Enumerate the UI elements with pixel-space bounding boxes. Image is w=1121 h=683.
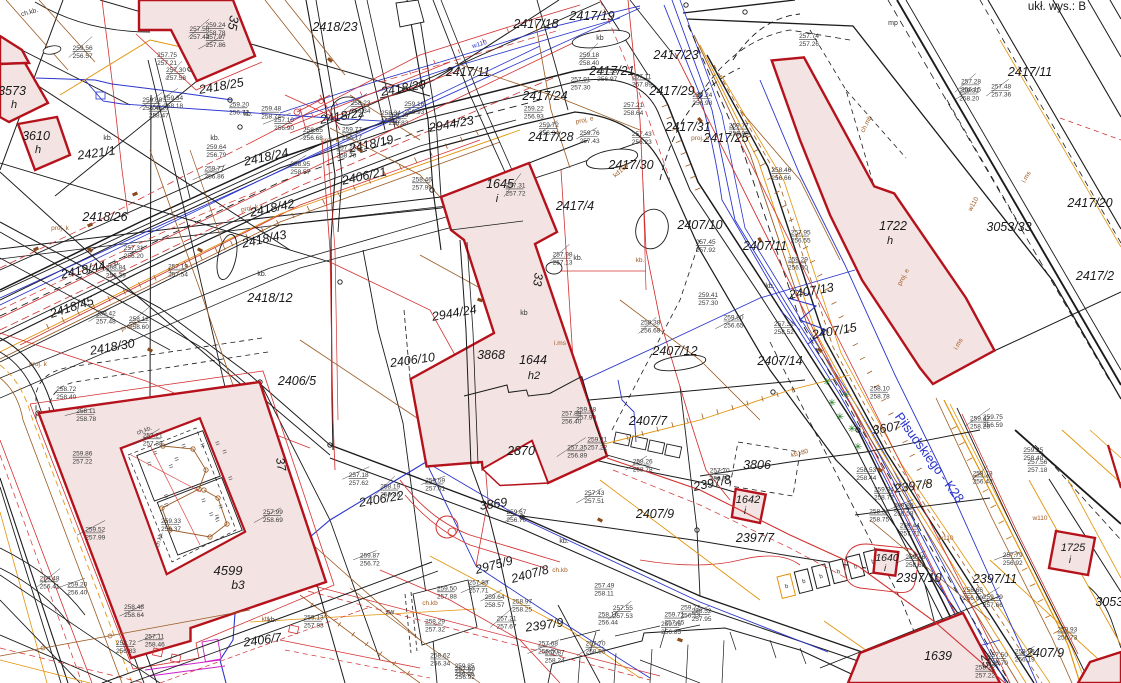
svg-text:258.72: 258.72: [116, 640, 136, 647]
svg-text:✳: ✳: [842, 390, 850, 401]
svg-text:4599: 4599: [214, 563, 243, 578]
svg-text:2417/29: 2417/29: [648, 84, 694, 98]
svg-text:258.11: 258.11: [594, 591, 614, 598]
svg-text:2407/12: 2407/12: [651, 344, 697, 358]
svg-text:257.95: 257.95: [791, 230, 811, 237]
svg-text:257.99: 257.99: [263, 509, 283, 516]
svg-text:258.26: 258.26: [633, 458, 653, 465]
svg-text:✳: ✳: [836, 412, 844, 423]
svg-text:259.59: 259.59: [425, 477, 445, 484]
svg-text:256.40: 256.40: [67, 589, 87, 596]
svg-text:257.72: 257.72: [506, 190, 526, 197]
svg-text:259.84: 259.84: [874, 487, 894, 494]
svg-text:2417/23: 2417/23: [652, 48, 698, 62]
svg-text:258.20: 258.20: [959, 95, 979, 102]
svg-text:ch.kb: ch.kb: [552, 567, 568, 574]
svg-text:258.57: 258.57: [290, 169, 310, 176]
svg-text:257.28: 257.28: [961, 78, 981, 85]
svg-text:258.80: 258.80: [894, 503, 914, 510]
svg-text:256.86: 256.86: [204, 173, 224, 180]
svg-text:proj. k: proj. k: [29, 361, 47, 368]
svg-text:kb.: kb.: [262, 616, 271, 623]
svg-text:257.92: 257.92: [696, 247, 716, 254]
svg-text:257.43: 257.43: [632, 131, 652, 138]
svg-text:256.92: 256.92: [1003, 560, 1023, 567]
svg-text:258.38: 258.38: [641, 320, 661, 327]
svg-text:256.41: 256.41: [40, 583, 60, 590]
svg-text:2407/7: 2407/7: [628, 414, 668, 428]
svg-text:256.85: 256.85: [661, 629, 681, 636]
svg-text:257.71: 257.71: [900, 531, 920, 538]
svg-text:257.91: 257.91: [571, 76, 591, 83]
svg-text:2418/26: 2418/26: [81, 210, 127, 224]
svg-text:258.66: 258.66: [963, 587, 983, 594]
svg-text:2407/14: 2407/14: [756, 354, 802, 368]
svg-text:256.30: 256.30: [788, 264, 808, 271]
svg-text:257.89: 257.89: [562, 411, 582, 418]
svg-text:258.18: 258.18: [163, 103, 183, 110]
svg-text:258.40: 258.40: [56, 394, 76, 401]
svg-text:256.73: 256.73: [1057, 634, 1077, 641]
svg-text:257.53: 257.53: [597, 68, 617, 75]
svg-text:kb.: kb.: [559, 538, 568, 545]
svg-text:258.44: 258.44: [856, 475, 876, 482]
svg-text:258.22: 258.22: [975, 665, 995, 672]
svg-text:259.20: 259.20: [67, 581, 87, 588]
svg-text:258.11: 258.11: [76, 408, 96, 415]
svg-text:3806: 3806: [743, 458, 771, 472]
svg-text:3053/: 3053/: [1095, 595, 1121, 609]
svg-text:2397/11: 2397/11: [972, 572, 1017, 586]
svg-text:257.31: 257.31: [506, 182, 526, 189]
svg-text:257.99: 257.99: [85, 534, 105, 541]
svg-text:259.79: 259.79: [983, 594, 1003, 601]
svg-text:257.26: 257.26: [799, 41, 819, 48]
svg-text:w110: w110: [1031, 515, 1047, 522]
svg-text:258.26: 258.26: [970, 424, 990, 431]
svg-text:2397/10: 2397/10: [895, 571, 941, 585]
svg-text:256.22: 256.22: [381, 118, 401, 125]
svg-text:257.75: 257.75: [157, 52, 177, 59]
svg-text:2418/23: 2418/23: [311, 20, 357, 34]
svg-text:257.70: 257.70: [710, 468, 730, 475]
svg-text:257.32: 257.32: [425, 627, 445, 634]
svg-text:258.62: 258.62: [430, 652, 450, 659]
svg-text:2870: 2870: [506, 444, 535, 458]
svg-text:2406/5: 2406/5: [277, 374, 316, 388]
svg-text:258.46: 258.46: [771, 167, 791, 174]
svg-text:2407/9: 2407/9: [635, 507, 674, 521]
svg-text:256.83: 256.83: [116, 648, 136, 655]
svg-text:259.77: 259.77: [729, 123, 749, 130]
svg-text:257.99: 257.99: [412, 184, 432, 191]
svg-text:256.13: 256.13: [680, 613, 700, 620]
svg-text:33: 33: [530, 272, 546, 287]
svg-text:257.45: 257.45: [696, 239, 716, 246]
svg-text:256.79: 256.79: [206, 152, 226, 159]
svg-text:259.25: 259.25: [1023, 447, 1043, 454]
svg-text:258.24: 258.24: [545, 657, 565, 664]
svg-text:258.78: 258.78: [206, 30, 226, 37]
svg-text:256.34: 256.34: [351, 108, 371, 115]
svg-text:2417/2: 2417/2: [1075, 269, 1114, 283]
svg-text:256.57: 256.57: [73, 53, 93, 60]
svg-text:258.64: 258.64: [623, 110, 643, 117]
svg-text:257.13: 257.13: [553, 260, 573, 267]
svg-text:257.22: 257.22: [587, 444, 607, 451]
svg-text:256.34: 256.34: [430, 660, 450, 667]
svg-text:258.64: 258.64: [124, 612, 144, 619]
svg-text:2417/19: 2417/19: [568, 9, 614, 23]
svg-text:258.78: 258.78: [633, 466, 653, 473]
svg-text:259.44: 259.44: [900, 523, 920, 530]
svg-text:259.16: 259.16: [404, 101, 424, 108]
svg-text:256.90: 256.90: [274, 125, 294, 132]
svg-text:3573: 3573: [0, 84, 26, 98]
svg-text:257.19: 257.19: [168, 263, 188, 270]
svg-text:257.48: 257.48: [96, 319, 116, 326]
svg-text:257.10: 257.10: [274, 117, 294, 124]
svg-text:258.93: 258.93: [404, 109, 424, 116]
svg-text:259.29: 259.29: [788, 256, 808, 263]
svg-text:mp: mp: [888, 20, 898, 27]
svg-text:257.43: 257.43: [580, 138, 600, 145]
svg-text:257.32: 257.32: [774, 321, 794, 328]
svg-text:258.47: 258.47: [149, 113, 169, 120]
svg-text:2417/24: 2417/24: [521, 89, 567, 103]
svg-text:256.19: 256.19: [1015, 657, 1035, 664]
svg-text:259.18: 259.18: [579, 52, 599, 59]
svg-text:257.11: 257.11: [632, 73, 652, 80]
svg-text:258.72: 258.72: [56, 386, 76, 393]
svg-text:257.83: 257.83: [304, 623, 324, 630]
svg-text:257.67: 257.67: [497, 623, 517, 630]
svg-text:257.49: 257.49: [594, 583, 614, 590]
svg-text:259.47: 259.47: [970, 416, 990, 423]
svg-text:259.13: 259.13: [304, 615, 324, 622]
svg-text:256.50: 256.50: [538, 648, 558, 655]
svg-text:257.18: 257.18: [349, 472, 369, 479]
svg-text:h2: h2: [528, 370, 540, 382]
svg-text:258.46: 258.46: [380, 492, 400, 499]
svg-text:✳: ✳: [848, 424, 856, 435]
svg-text:kb.: kb.: [210, 135, 219, 142]
svg-text:257.22: 257.22: [73, 459, 93, 466]
svg-text:256.98: 256.98: [692, 100, 712, 107]
svg-text:258.70: 258.70: [336, 152, 356, 159]
svg-text:kb: kb: [520, 310, 528, 317]
svg-text:259.76: 259.76: [580, 130, 600, 137]
svg-text:1722: 1722: [879, 219, 907, 233]
svg-text:258.93: 258.93: [586, 649, 606, 656]
svg-text:259.68: 259.68: [142, 97, 162, 104]
svg-text:256.66: 256.66: [771, 175, 791, 182]
svg-text:2407/11: 2407/11: [742, 239, 787, 253]
svg-text:258.69: 258.69: [263, 517, 283, 524]
svg-text:259.56: 259.56: [73, 45, 93, 52]
svg-text:✳: ✳: [828, 398, 836, 409]
svg-text:257.36: 257.36: [991, 92, 1011, 99]
svg-text:zw: zw: [386, 609, 396, 616]
svg-text:257.62: 257.62: [349, 480, 369, 487]
svg-text:1640: 1640: [875, 552, 899, 564]
svg-text:2417/18: 2417/18: [512, 17, 558, 31]
svg-text:256.40: 256.40: [562, 419, 582, 426]
svg-text:258.48: 258.48: [124, 604, 144, 611]
svg-text:2417/11: 2417/11: [445, 65, 490, 79]
svg-text:h: h: [887, 235, 893, 247]
svg-text:258.75: 258.75: [869, 516, 889, 523]
svg-text:258.52: 258.52: [774, 329, 794, 336]
svg-text:3610: 3610: [22, 129, 50, 143]
svg-text:258.25: 258.25: [512, 607, 532, 614]
svg-text:2417/20: 2417/20: [1066, 196, 1112, 210]
svg-text:2407/10: 2407/10: [676, 218, 722, 232]
svg-text:259.72: 259.72: [539, 122, 559, 129]
svg-text:257.21: 257.21: [623, 102, 643, 109]
svg-text:2417/11: 2417/11: [1007, 65, 1052, 79]
svg-text:256.23: 256.23: [632, 139, 652, 146]
svg-text:258.10: 258.10: [870, 386, 890, 393]
svg-text:258.16: 258.16: [598, 611, 618, 618]
svg-text:257.38: 257.38: [143, 440, 163, 447]
svg-text:256.39: 256.39: [106, 272, 126, 279]
svg-text:257.98: 257.98: [553, 252, 573, 259]
svg-text:259.24: 259.24: [206, 22, 226, 29]
svg-text:257.61: 257.61: [425, 485, 445, 492]
svg-text:257.58: 257.58: [166, 75, 186, 82]
svg-text:259.33: 259.33: [161, 518, 181, 525]
svg-text:proj. s: proj. s: [691, 135, 709, 142]
svg-text:257.18: 257.18: [1027, 467, 1047, 474]
svg-text:256.79: 256.79: [710, 476, 730, 483]
svg-text:258.68: 258.68: [905, 562, 925, 569]
svg-text:256.92: 256.92: [455, 674, 475, 681]
svg-text:1644: 1644: [519, 353, 547, 367]
svg-text:258.40: 258.40: [579, 60, 599, 67]
svg-text:259.21: 259.21: [587, 436, 607, 443]
svg-text:259.20: 259.20: [229, 101, 249, 108]
svg-text:258.29: 258.29: [425, 619, 445, 626]
svg-text:258.84: 258.84: [106, 264, 126, 271]
svg-text:kb.: kb.: [573, 255, 582, 262]
svg-text:257.83: 257.83: [469, 580, 489, 587]
svg-text:258.95: 258.95: [290, 161, 310, 168]
svg-text:258.53: 258.53: [856, 467, 876, 474]
svg-text:256.15: 256.15: [961, 86, 981, 93]
svg-text:kb: kb: [596, 35, 604, 42]
svg-text:258.46: 258.46: [412, 176, 432, 183]
svg-text:258.78: 258.78: [76, 416, 96, 423]
svg-text:257.24: 257.24: [692, 92, 712, 99]
svg-text:257.50: 257.50: [988, 652, 1008, 659]
svg-text:257.89: 257.89: [632, 81, 652, 88]
svg-text:259.52: 259.52: [85, 526, 105, 533]
svg-text:258.78: 258.78: [870, 394, 890, 401]
svg-text:259.48: 259.48: [40, 575, 60, 582]
svg-text:2417/4: 2417/4: [555, 199, 594, 213]
svg-text:w110: w110: [937, 535, 953, 542]
svg-text:1725: 1725: [1061, 542, 1086, 554]
svg-text:i.ms: i.ms: [554, 340, 567, 347]
svg-text:1639: 1639: [924, 649, 952, 663]
svg-text:256.55: 256.55: [791, 238, 811, 245]
svg-text:258.72: 258.72: [874, 495, 894, 502]
svg-text:257.30: 257.30: [571, 84, 591, 91]
svg-text:kb.: kb.: [103, 135, 112, 142]
svg-text:257.51: 257.51: [584, 498, 604, 505]
svg-text:ukł. wys.: B: ukł. wys.: B: [1028, 1, 1086, 13]
svg-text:h: h: [35, 144, 41, 156]
svg-text:256.89: 256.89: [567, 452, 587, 459]
svg-text:b3: b3: [231, 578, 245, 592]
svg-text:1642: 1642: [736, 494, 760, 506]
svg-text:✳: ✳: [854, 442, 862, 453]
svg-text:259.93: 259.93: [1057, 626, 1077, 633]
svg-text:258.97: 258.97: [512, 599, 532, 606]
svg-text:256.20: 256.20: [124, 253, 144, 260]
svg-text:258.48: 258.48: [1023, 455, 1043, 462]
svg-text:259.22: 259.22: [524, 106, 544, 113]
svg-text:256.43: 256.43: [973, 478, 993, 485]
svg-text:257.22: 257.22: [975, 673, 995, 680]
svg-text:proj. k: proj. k: [51, 225, 69, 232]
svg-text:257.65: 257.65: [664, 620, 684, 627]
svg-text:256.65: 256.65: [724, 323, 744, 330]
svg-text:257.74: 257.74: [799, 33, 819, 40]
svg-text:3868: 3868: [477, 348, 505, 362]
svg-text:2397/7: 2397/7: [735, 531, 775, 545]
svg-text:kb.: kb.: [257, 271, 266, 278]
svg-text:✳: ✳: [823, 377, 831, 388]
svg-text:256.72: 256.72: [360, 561, 380, 568]
svg-text:proj. k: proj. k: [321, 137, 339, 144]
svg-text:258.58: 258.58: [894, 511, 914, 518]
svg-text:259.48: 259.48: [261, 106, 281, 113]
svg-text:256.95: 256.95: [729, 131, 749, 138]
svg-text:259.50: 259.50: [437, 585, 457, 592]
svg-text:257.30: 257.30: [698, 300, 718, 307]
svg-text:257.88: 257.88: [437, 593, 457, 600]
svg-text:257.21: 257.21: [143, 432, 163, 439]
svg-text:258.46: 258.46: [145, 641, 165, 648]
svg-text:258.34: 258.34: [381, 110, 401, 117]
svg-text:257.21: 257.21: [157, 60, 177, 67]
svg-text:257.54: 257.54: [168, 271, 188, 278]
svg-text:ch.kb: ch.kb: [422, 600, 438, 607]
svg-text:256.37: 256.37: [161, 526, 181, 533]
svg-text:259.72: 259.72: [680, 605, 700, 612]
svg-text:2418/12: 2418/12: [246, 291, 292, 305]
svg-text:256.44: 256.44: [598, 619, 618, 626]
svg-text:256.43: 256.43: [142, 105, 162, 112]
svg-text:256.17: 256.17: [342, 134, 362, 141]
svg-text:257.66: 257.66: [983, 602, 1003, 609]
svg-text:259.86: 259.86: [73, 451, 93, 458]
svg-text:kb.: kb.: [765, 283, 774, 290]
svg-text:259.42: 259.42: [96, 311, 116, 318]
svg-text:256.93: 256.93: [524, 114, 544, 121]
svg-text:2417/30: 2417/30: [607, 158, 653, 172]
svg-text:258.34: 258.34: [869, 508, 889, 515]
svg-text:259.41: 259.41: [698, 292, 718, 299]
svg-text:259.77: 259.77: [342, 126, 362, 133]
svg-text:256.72: 256.72: [229, 109, 249, 116]
svg-text:258.57: 258.57: [485, 602, 505, 609]
svg-text:257.31: 257.31: [124, 245, 144, 252]
svg-text:257.11: 257.11: [145, 633, 165, 640]
svg-text:257.69: 257.69: [455, 666, 475, 673]
svg-text:259.64: 259.64: [206, 144, 226, 151]
svg-text:257.26: 257.26: [336, 144, 356, 151]
svg-text:257.43: 257.43: [584, 490, 604, 497]
svg-text:3053/33: 3053/33: [986, 220, 1031, 234]
svg-text:h: h: [11, 99, 17, 111]
svg-text:257.30: 257.30: [166, 67, 186, 74]
svg-text:256.97: 256.97: [597, 76, 617, 83]
svg-text:kb.: kb.: [636, 257, 645, 264]
